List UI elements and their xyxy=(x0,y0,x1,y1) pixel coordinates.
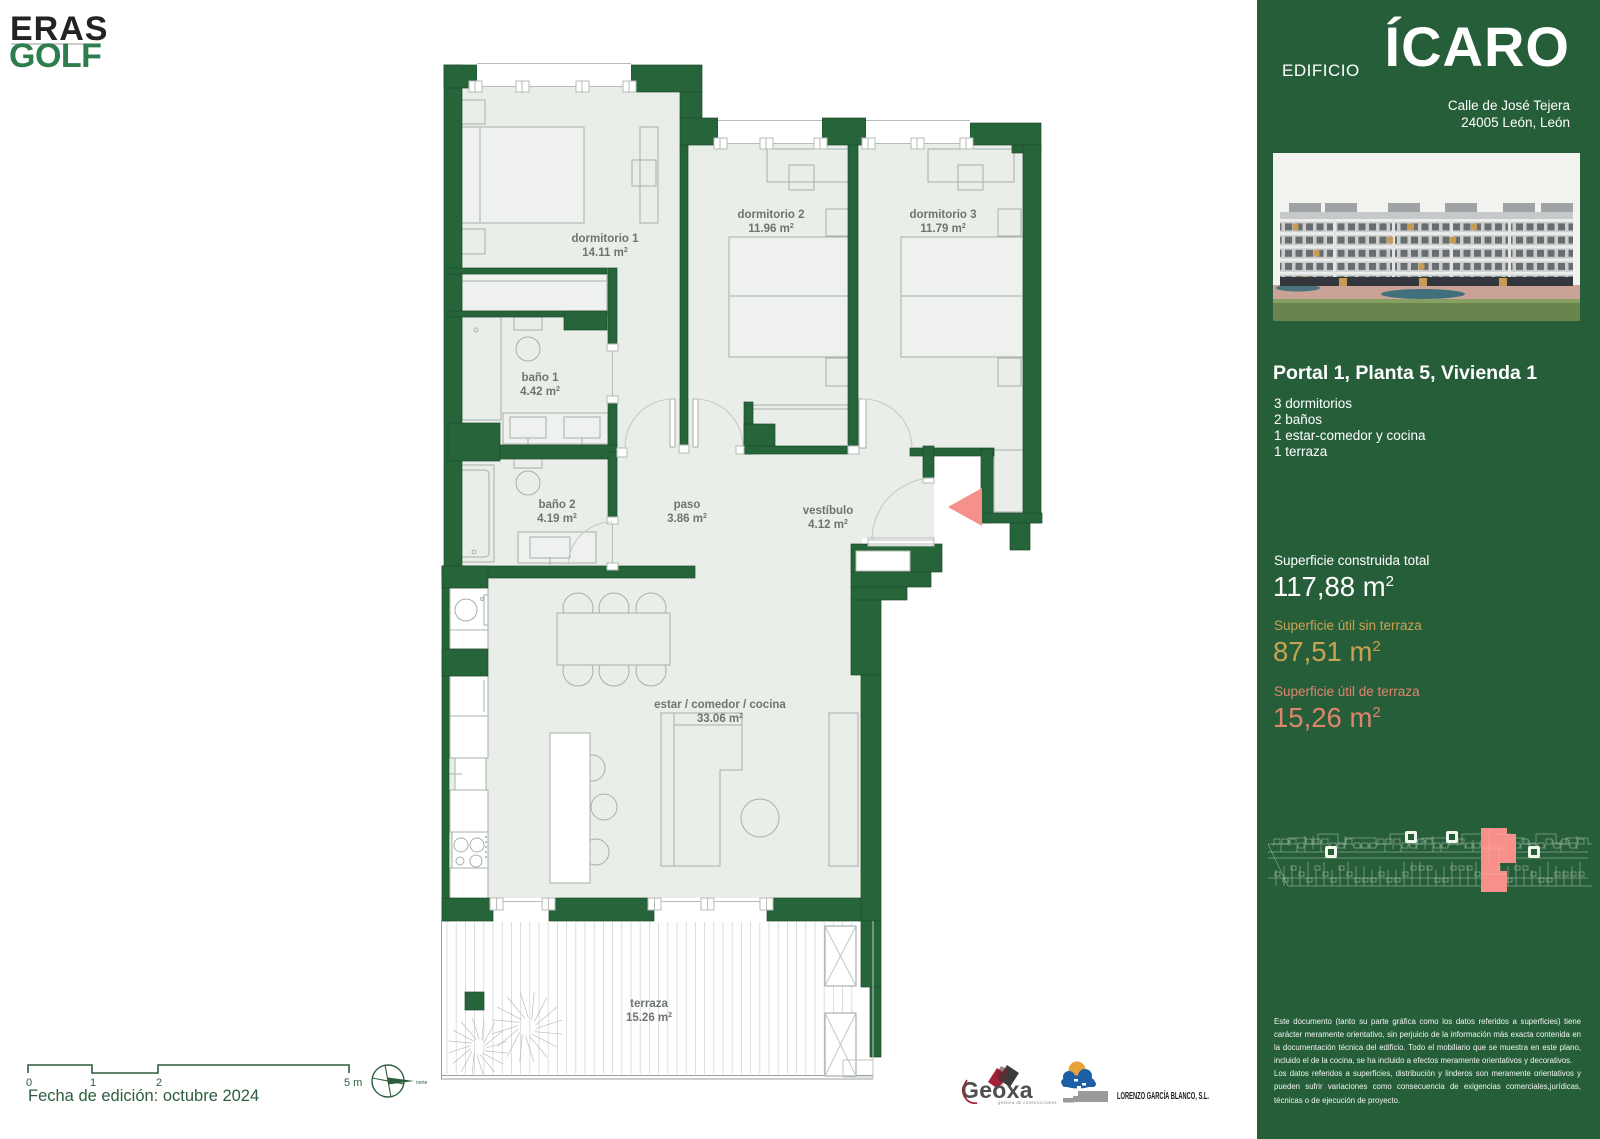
svg-text:11.96 m2: 11.96 m2 xyxy=(748,223,794,235)
svg-text:11.79 m2: 11.79 m2 xyxy=(920,223,966,235)
svg-text:4.19 m2: 4.19 m2 xyxy=(537,513,577,525)
svg-text:vestíbulo: vestíbulo xyxy=(803,505,853,517)
svg-text:33.06 m2: 33.06 m2 xyxy=(697,713,743,725)
svg-text:4.12 m2: 4.12 m2 xyxy=(808,519,848,531)
svg-text:gestora de construcciones: gestora de construcciones xyxy=(998,1100,1057,1105)
svg-text:dormitorio 1: dormitorio 1 xyxy=(571,233,639,245)
svg-text:LORENZO GARCÍA BLANCO, S.L.: LORENZO GARCÍA BLANCO, S.L. xyxy=(1117,1089,1209,1102)
svg-text:dormitorio 3: dormitorio 3 xyxy=(909,209,976,221)
svg-text:baño 1: baño 1 xyxy=(521,372,559,384)
svg-text:terraza: terraza xyxy=(630,998,668,1010)
svg-text:estar / comedor / cocina: estar / comedor / cocina xyxy=(654,699,786,711)
svg-text:14.11 m2: 14.11 m2 xyxy=(582,247,628,259)
svg-text:Fecha de edición: octubre 2024: Fecha de edición: octubre 2024 xyxy=(28,1087,259,1105)
svg-text:3.86 m2: 3.86 m2 xyxy=(667,513,707,525)
svg-text:paso: paso xyxy=(674,499,701,511)
svg-text:15.26 m2: 15.26 m2 xyxy=(626,1012,672,1024)
svg-text:5 m: 5 m xyxy=(344,1077,362,1089)
svg-text:4.42 m2: 4.42 m2 xyxy=(520,386,560,398)
svg-text:dormitorio 2: dormitorio 2 xyxy=(737,209,804,221)
svg-text:norte: norte xyxy=(416,1080,428,1086)
svg-text:baño 2: baño 2 xyxy=(538,499,575,511)
svg-text:GOLF: GOLF xyxy=(9,37,101,75)
